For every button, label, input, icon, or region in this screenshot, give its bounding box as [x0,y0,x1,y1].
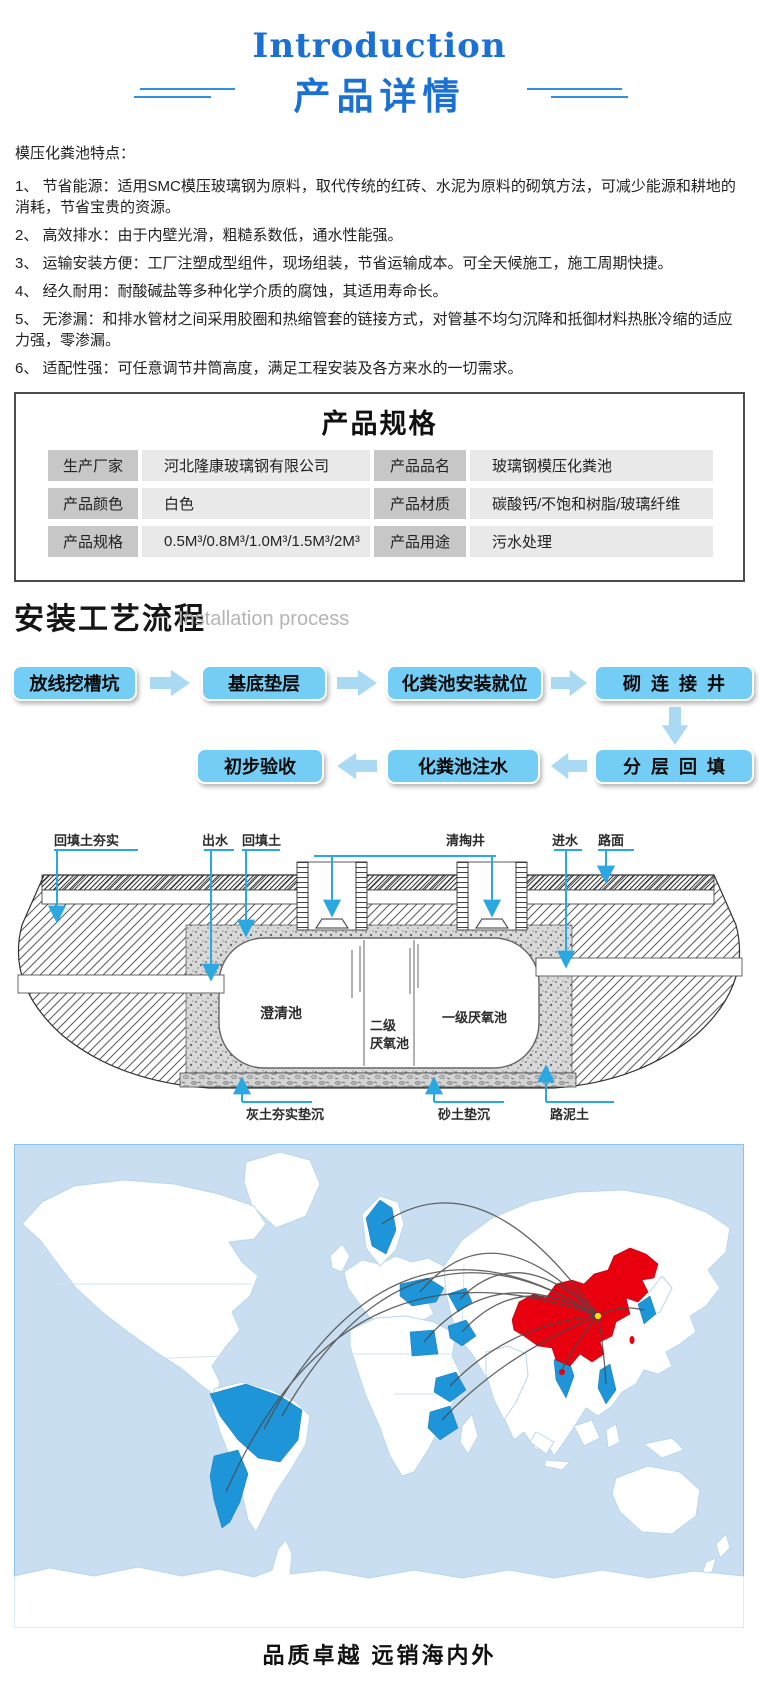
flow-step-2: 基底垫层 [201,665,327,701]
gravel-cushion [180,1073,576,1087]
installation-cross-section-diagram: 回填土夯实 出水 回填土 清掏井 进水 路面 澄清池 二级 厌氧池 一级厌氧池 … [14,830,744,1130]
diagram-label-road: 路面 [598,833,624,848]
spec-value: 玻璃钢模压化粪池 [470,450,713,481]
diagram-label-sand-cushion: 砂土垫沉 [437,1107,490,1122]
feature-item: 4、 经久耐用：耐酸碱盐等多种化学介质的腐蚀，其适用寿命长。 [15,281,746,302]
section-subtitle-en: Installation process [178,608,349,631]
flow-step-5: 分 层 回 填 [594,748,754,784]
feature-section: 模压化粪池特点： 1、 节省能源：适用SMC模压玻璃钢为原料，取代传统的红砖、水… [15,143,746,386]
arrow-left-icon [551,751,587,781]
chamber-label-primary: 一级厌氧池 [442,1010,507,1025]
chamber-label-secondary: 二级 [370,1018,397,1033]
spec-label: 产品用途 [374,526,466,557]
chamber-label-clarifier: 澄清池 [260,1005,302,1021]
diagram-label-road-soil: 路泥土 [550,1107,589,1122]
feature-item: 6、 适配性强：可任意调节井筒高度，满足工程安装及各方来水的一切需求。 [15,358,746,379]
spec-value: 0.5M³/0.8M³/1.0M³/1.5M³/2M³ [142,526,370,557]
spec-value: 白色 [142,488,370,519]
decorative-line [551,96,628,98]
flow-step-7: 初步验收 [196,748,324,784]
page-title-zh: 产品详情 [0,66,759,120]
diagram-label-backfill-compaction: 回填土夯实 [54,833,119,848]
diagram-label-lime-cushion: 灰土夯实垫沉 [246,1107,324,1122]
road-surface-layer [42,875,714,890]
road-base-band [42,890,714,904]
diagram-label-cleanout-well: 清掏井 [446,833,485,848]
feature-item: 3、 运输安装方便：工厂注塑成型组件，现场组装，节省运输成本。可全天候施工，施工… [15,253,746,274]
flow-step-3: 化粪池安装就位 [386,665,543,701]
spec-value: 河北隆康玻璃钢有限公司 [142,450,370,481]
world-export-map [14,1144,744,1628]
arrow-left-icon [337,751,377,781]
outlet-pipe [18,975,224,993]
spec-label: 产品规格 [48,526,138,557]
spec-value: 碳酸钙/不饱和树脂/玻璃纤维 [470,488,713,519]
decorative-line [140,88,235,90]
chamber-label-secondary2: 厌氧池 [370,1036,409,1051]
flow-step-4: 砌 连 接 井 [594,665,754,701]
spec-label: 产品品名 [374,450,466,481]
origin-marker [595,1313,602,1320]
spec-label: 产品颜色 [48,488,138,519]
feature-heading: 模压化粪池特点： [15,143,746,164]
arrow-right-icon [150,668,190,698]
spec-title: 产品规格 [16,402,743,441]
spec-label: 生产厂家 [48,450,138,481]
spec-label: 产品材质 [374,488,466,519]
spec-table: 产品规格 生产厂家 河北隆康玻璃钢有限公司 产品品名 玻璃钢模压化粪池 产品颜色… [14,392,745,582]
spec-value: 污水处理 [470,526,713,557]
diagram-label-backfill: 回填土 [242,833,281,848]
feature-item: 5、 无渗漏：和排水管材之间采用胶圈和热缩管套的链接方式，对管基不均匀沉降和抵御… [15,309,746,351]
decorative-line [134,96,211,98]
flow-step-1: 放线挖槽坑 [12,665,137,701]
arrow-right-icon [337,668,377,698]
feature-item: 2、 高效排水：由于内壁光滑，粗糙系数低，通水性能强。 [15,225,746,246]
arrow-right-icon [551,668,587,698]
page-title-en: Introduction [0,26,759,66]
country-egypt [410,1330,438,1356]
feature-item: 1、 节省能源：适用SMC模压玻璃钢为原料，取代传统的红砖、水泥为原料的砌筑方法… [15,176,746,218]
footer-slogan: 品质卓越 远销海内外 [0,1638,759,1670]
diagram-label-outlet: 出水 [202,833,229,848]
spec-grid: 生产厂家 河北隆康玻璃钢有限公司 产品品名 玻璃钢模压化粪池 产品颜色 白色 产… [48,450,713,557]
diagram-label-inlet: 进水 [552,833,579,848]
product-detail-page: Introduction 产品详情 模压化粪池特点： 1、 节省能源：适用SMC… [0,0,759,1700]
arrow-down-icon [660,707,690,745]
flow-step-6: 化粪池注水 [386,748,540,784]
decorative-line [527,88,622,90]
